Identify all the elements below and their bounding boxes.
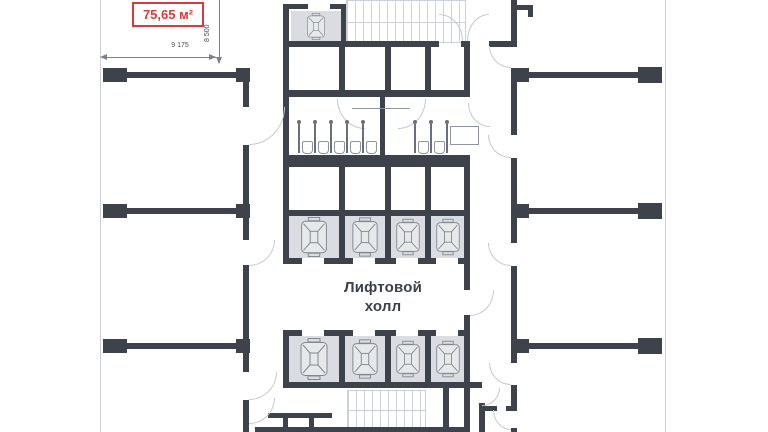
floor-plan: 75,65 м² 9 175 8 500: [0, 0, 768, 432]
stall-partition: [330, 124, 332, 153]
wall: [511, 158, 517, 243]
elevator-car-icon: [351, 338, 379, 380]
stall-partition: [346, 124, 348, 153]
wall: [425, 41, 431, 97]
wall: [464, 155, 470, 290]
width-dimension-label: 9 175: [150, 42, 210, 49]
door-arc: [482, 388, 500, 406]
wall: [339, 41, 345, 97]
elevator-car-icon: [395, 338, 421, 380]
elevator-car-icon: [435, 217, 461, 257]
door-arc: [488, 243, 511, 266]
height-dimension-line: [219, 0, 220, 63]
wall: [638, 338, 662, 354]
elevator-car-icon: [299, 338, 329, 380]
wall: [103, 343, 250, 349]
wall: [458, 258, 470, 264]
wall: [283, 41, 439, 47]
elevator-shaft: [289, 336, 339, 382]
toilet-icon: [418, 141, 429, 154]
elevator-car-icon: [299, 217, 329, 257]
door-arc: [249, 240, 275, 266]
wall: [103, 72, 250, 78]
toilet-icon: [434, 141, 445, 154]
toilet-icon: [366, 141, 377, 154]
stall-partition: [446, 124, 448, 153]
wall: [283, 4, 289, 97]
door-arc: [337, 99, 365, 129]
wall: [324, 258, 353, 264]
wall: [283, 382, 482, 388]
elevator-car-icon: [395, 217, 421, 257]
wall: [528, 5, 533, 17]
toilet-icon: [334, 141, 345, 154]
boundary-line-left: [100, 0, 101, 432]
toilet-icon: [318, 141, 329, 154]
elevator-hall-line2: холл: [330, 297, 436, 316]
wall: [380, 97, 385, 155]
wall: [518, 343, 640, 349]
wall: [638, 67, 662, 83]
wall: [283, 155, 470, 167]
door-arc: [470, 290, 494, 316]
elevator-hall-label: Лифтовой холл: [330, 278, 436, 316]
sink-counter: [450, 126, 479, 145]
wall: [638, 203, 662, 219]
elevator-shaft: [431, 216, 464, 258]
wall: [330, 4, 346, 9]
wall: [243, 145, 249, 240]
wall: [283, 90, 470, 97]
elevator-car-icon: [435, 338, 461, 380]
stall-partition: [314, 124, 316, 153]
door-arc: [249, 107, 285, 145]
boundary-line-right: [665, 0, 666, 432]
door-arc: [398, 99, 426, 129]
elevator-shaft: [291, 11, 341, 42]
wall: [255, 427, 470, 432]
door-arc: [488, 135, 511, 158]
wall: [511, 428, 517, 432]
wall: [103, 208, 250, 214]
staircase: [347, 390, 426, 429]
dimension-arrow-down: [216, 57, 222, 64]
door-arc: [489, 363, 511, 385]
elevator-shaft: [289, 216, 339, 258]
elevator-shaft: [345, 336, 385, 382]
wall: [518, 72, 640, 78]
door-arc: [468, 103, 490, 127]
dimension-arrow-right: [209, 54, 216, 60]
stall-partition: [298, 124, 300, 153]
wall: [511, 266, 517, 363]
door-arc: [249, 372, 277, 400]
stall-partition: [430, 124, 432, 153]
wall: [443, 388, 449, 432]
wall: [464, 41, 470, 97]
stall-partition: [362, 124, 364, 153]
elevator-hall-line1: Лифтовой: [330, 278, 436, 297]
elevator-shaft: [391, 216, 425, 258]
stall-partition: [414, 124, 416, 153]
area-label: 75,65 м²: [143, 7, 193, 22]
toilet-icon: [350, 141, 361, 154]
wall: [518, 208, 640, 214]
elevator-shaft: [391, 336, 425, 382]
wall: [283, 258, 302, 264]
wall: [243, 265, 249, 372]
wall: [375, 258, 396, 264]
wall: [418, 258, 436, 264]
door-arc: [467, 14, 489, 41]
room-area-badge: 75,65 м²: [132, 2, 204, 27]
toilet-icon: [302, 141, 313, 154]
dimension-arrow-left: [100, 54, 107, 60]
wall: [288, 4, 308, 9]
wall: [511, 68, 517, 135]
wall: [268, 413, 332, 418]
elevator-shaft: [431, 336, 464, 382]
wall: [385, 41, 391, 97]
elevator-shaft: [345, 216, 385, 258]
door-arc: [249, 398, 275, 424]
wall: [243, 72, 249, 107]
width-dimension-line: [103, 57, 216, 58]
door-arc: [489, 46, 511, 68]
elevator-car-icon: [306, 13, 326, 40]
height-dimension-label: 8 500: [204, 2, 211, 42]
elevator-car-icon: [351, 217, 379, 257]
door-arc: [493, 410, 511, 430]
